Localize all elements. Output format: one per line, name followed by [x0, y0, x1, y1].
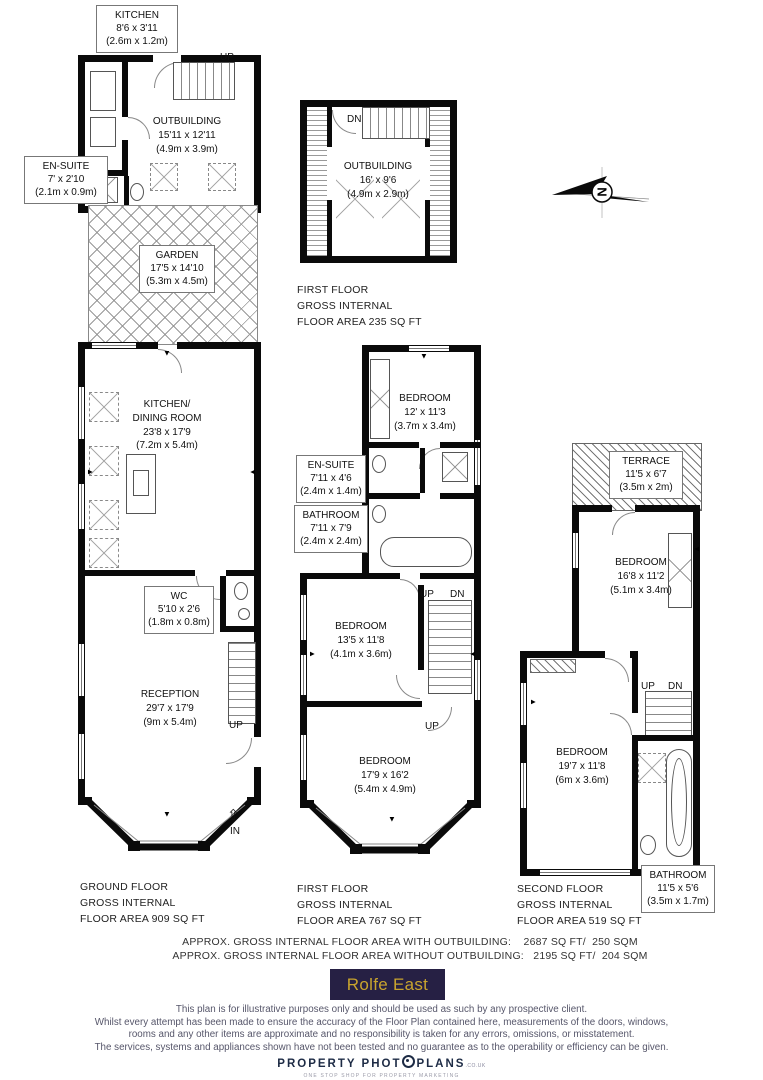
caption-line: GROSS INTERNAL [297, 898, 422, 914]
room-name: KITCHEN [99, 9, 175, 22]
total-area-without-outbuilding: APPROX. GROSS INTERNAL FLOOR AREA WITHOU… [60, 950, 760, 962]
room-dims-metric: (4.9m x 2.9m) [333, 188, 423, 202]
hob [90, 117, 116, 147]
kitchen-sink [90, 71, 116, 111]
room-dims-imperial: 17'5 x 14'10 [142, 262, 212, 275]
wall [124, 176, 129, 208]
room-dims-imperial: 7'11 x 4'6 [299, 472, 363, 485]
room-dims-imperial: 23'8 x 17'9 [122, 426, 212, 440]
door-arc [612, 512, 635, 535]
room-dims-metric: (2.4m x 2.4m) [297, 535, 365, 548]
toilet [234, 582, 248, 600]
caption-line: GROSS INTERNAL [517, 898, 642, 914]
caption-second-floor: SECOND FLOOR GROSS INTERNAL FLOOR AREA 5… [517, 882, 642, 929]
room-dims-metric: (1.8m x 0.8m) [147, 616, 211, 629]
kitchen-unit [89, 392, 119, 422]
measurement-marker-icon [163, 810, 171, 818]
room-label-terrace: TERRACE 11'5 x 6'7 (3.5m x 2m) [609, 451, 683, 499]
wall [78, 529, 85, 644]
kitchen-unit [89, 538, 119, 568]
room-dims-metric: (7.2m x 5.4m) [122, 439, 212, 453]
door-arc [396, 675, 420, 699]
measurement-marker-icon [163, 349, 171, 357]
room-dims-metric: (3.5m x 2m) [612, 481, 680, 494]
sloped-ceiling-hatch [307, 107, 327, 256]
room-dims-imperial: 17'9 x 16'2 [340, 769, 430, 783]
window [300, 655, 307, 695]
room-dims-imperial: 19'7 x 11'8 [537, 760, 627, 774]
caption-line: FIRST FLOOR [297, 882, 422, 898]
wall [425, 200, 430, 256]
stairs [228, 642, 256, 724]
room-dims-metric: (2.1m x 0.9m) [27, 186, 105, 199]
room-name: EN-SUITE [27, 160, 105, 173]
caption-first-floor-outbuilding: FIRST FLOOR GROSS INTERNAL FLOOR AREA 23… [297, 283, 422, 330]
room-dims-imperial: 11'5 x 6'7 [612, 468, 680, 481]
wall [300, 256, 457, 263]
room-label-ob-ensuite: EN-SUITE 7' x 2'10 (2.1m x 0.9m) [24, 156, 108, 204]
wall [78, 342, 85, 387]
caption-line: SECOND FLOOR [517, 882, 642, 898]
room-label-reception: RECEPTION 29'7 x 17'9 (9m x 5.4m) [126, 688, 214, 729]
caption-line: GROUND FLOOR [80, 880, 205, 896]
wall [520, 725, 527, 763]
wall [78, 696, 85, 734]
footer-logo-suffix: .CO.UK [465, 1063, 485, 1069]
room-name: RECEPTION [126, 688, 214, 702]
stairs-dn-label: DN [668, 681, 682, 692]
room-dims-metric: (2.6m x 1.2m) [99, 35, 175, 48]
skylight [208, 163, 236, 191]
room-label-sf-bathroom: BATHROOM 11'5 x 5'6 (3.5m x 1.7m) [641, 865, 715, 913]
disclaimer-line: This plan is for illustrative purposes o… [40, 1004, 723, 1017]
caption-first-floor: FIRST FLOOR GROSS INTERNAL FLOOR AREA 76… [297, 882, 422, 929]
room-dims-imperial: 7' x 2'10 [27, 173, 105, 186]
window [474, 660, 481, 700]
wall [300, 780, 307, 800]
disclaimer: This plan is for illustrative purposes o… [40, 1004, 723, 1054]
room-label-ff-bedroom1: BEDROOM 12' x 11'3 (3.7m x 3.4m) [380, 392, 470, 433]
north-compass: N [552, 165, 652, 220]
room-dims-imperial: 16' x 9'6 [333, 174, 423, 188]
wall [572, 505, 579, 533]
room-dims-imperial: 16'8 x 11'2 [596, 570, 686, 584]
footer-logo-row: PROPERTY PHOTPLANS.CO.UK [0, 1054, 763, 1072]
wall [420, 448, 425, 493]
wall [572, 651, 605, 658]
measurement-marker-icon [86, 468, 94, 476]
room-name: BEDROOM [316, 620, 406, 634]
measurement-marker-icon [529, 698, 537, 706]
wall [254, 767, 261, 797]
basin [238, 608, 250, 620]
room-dims-metric: (3.5m x 1.7m) [644, 895, 712, 908]
disclaimer-line: The services, systems and appliances sho… [40, 1042, 723, 1055]
agent-logo: Rolfe East [330, 969, 445, 1000]
window [540, 869, 630, 876]
room-label-sf-bedroom2: BEDROOM 19'7 x 11'8 (6m x 3.6m) [537, 746, 627, 787]
caption-line: GROSS INTERNAL [297, 299, 422, 315]
wall [369, 442, 419, 448]
stairs [428, 600, 472, 694]
caption-line: FLOOR AREA 235 SQ FT [297, 315, 422, 331]
caption-line: GROSS INTERNAL [80, 896, 205, 912]
room-label-ob-kitchen: KITCHEN 8'6 x 3'11 (2.6m x 1.2m) [96, 5, 178, 53]
disclaimer-line: rooms and any other items are approximat… [40, 1029, 723, 1042]
room-name: OUTBUILDING [139, 115, 235, 129]
room-name: DINING ROOM [122, 412, 212, 426]
footer-logo-text: PLANS [416, 1058, 465, 1070]
wall [327, 200, 332, 256]
wall [122, 62, 128, 117]
skylight [150, 163, 178, 191]
wall [693, 505, 700, 875]
entry-arrow-icon: ⇧ [227, 806, 240, 824]
window [520, 763, 527, 808]
room-name: BATHROOM [644, 869, 712, 882]
caption-line: FLOOR AREA 909 SQ FT [80, 912, 205, 928]
caption-line: FIRST FLOOR [297, 283, 422, 299]
room-dims-metric: (4.9m x 3.9m) [139, 143, 235, 157]
stairs [362, 107, 430, 139]
floorplan-page: N KITCHEN 8'6 x 3'11 (2.6m x 1.2m) EN-SU… [0, 0, 763, 1080]
footer-logo-tagline: ONE STOP SHOP FOR PROPERTY MARKETING [0, 1073, 763, 1079]
measurement-marker-icon [420, 352, 428, 360]
room-name: BEDROOM [380, 392, 470, 406]
measurement-marker-icon [308, 650, 316, 658]
stairs-dn-label: DN [450, 589, 464, 600]
bath-inner [671, 758, 687, 846]
room-name: KITCHEN/ [122, 398, 212, 412]
measurement-marker-icon [469, 650, 477, 658]
room-label-kitchen-dining: KITCHEN/ DINING ROOM 23'8 x 17'9 (7.2m x… [122, 398, 212, 453]
bath [380, 537, 472, 567]
wall [136, 342, 158, 349]
caption-ground-floor: GROUND FLOOR GROSS INTERNAL FLOOR AREA 9… [80, 880, 205, 927]
room-label-ob-first: OUTBUILDING 16' x 9'6 (4.9m x 2.9m) [333, 160, 423, 201]
wall [520, 651, 527, 683]
entrance-door-arc [226, 738, 252, 764]
wall [635, 505, 700, 512]
kitchen-unit [89, 500, 119, 530]
stairs [645, 691, 692, 739]
window [78, 387, 85, 439]
room-dims-metric: (3.7m x 3.4m) [380, 420, 470, 434]
sloped-ceiling-hatch [430, 107, 450, 256]
wall [474, 700, 481, 800]
stairs-up-label: UP [425, 721, 439, 732]
window [409, 345, 449, 352]
wall [632, 735, 700, 741]
shower [442, 452, 468, 482]
wall [78, 55, 153, 62]
wall [254, 55, 261, 213]
camera-aperture-icon [402, 1055, 415, 1068]
room-name: OUTBUILDING [333, 160, 423, 174]
plan-second-floor [520, 443, 704, 875]
wall [440, 493, 481, 499]
room-label-ff-bedroom2: BEDROOM 13'5 x 11'8 (4.1m x 3.6m) [316, 620, 406, 661]
wall [440, 442, 481, 448]
room-dims-imperial: 29'7 x 17'9 [126, 702, 214, 716]
wall [362, 493, 420, 499]
window [520, 683, 527, 725]
wall [220, 576, 226, 632]
room-label-wc: WC 5'10 x 2'6 (1.8m x 0.8m) [144, 586, 214, 634]
measurement-marker-icon [388, 815, 396, 823]
room-name: WC [147, 590, 211, 603]
wall [520, 869, 540, 876]
toilet [372, 455, 386, 473]
window [300, 595, 307, 640]
caption-line: FLOOR AREA 767 SQ FT [297, 914, 422, 930]
bay-window [300, 800, 481, 878]
room-name: EN-SUITE [299, 459, 363, 472]
door-arc [605, 658, 629, 682]
door-arc [610, 713, 632, 735]
property-photo-plans-logo: PROPERTY PHOTPLANS.CO.UK ONE STOP SHOP F… [0, 1054, 763, 1079]
stairs-up-label: UP [220, 52, 234, 63]
wall [520, 651, 580, 658]
room-name: BEDROOM [596, 556, 686, 570]
agent-logo-text: Rolfe East [347, 975, 428, 995]
room-dims-metric: (2.4m x 1.4m) [299, 485, 363, 498]
wall [300, 100, 307, 263]
stairs [173, 62, 235, 100]
wall [420, 573, 481, 579]
wall [520, 808, 527, 875]
wall [300, 573, 400, 579]
room-name: BEDROOM [340, 755, 430, 769]
room-label-sf-bedroom1: BEDROOM 16'8 x 11'2 (5.1m x 3.4m) [596, 556, 686, 597]
room-dims-imperial: 8'6 x 3'11 [99, 22, 175, 35]
window [300, 735, 307, 780]
room-dims-metric: (6m x 3.6m) [537, 774, 627, 788]
toilet [130, 183, 144, 201]
room-dims-metric: (9m x 5.4m) [126, 716, 214, 730]
wall [300, 100, 457, 107]
room-label-ff-bathroom: BATHROOM 7'11 x 7'9 (2.4m x 2.4m) [294, 505, 368, 553]
wall [450, 100, 457, 263]
room-label-ff-ensuite: EN-SUITE 7'11 x 4'6 (2.4m x 1.4m) [296, 455, 366, 503]
room-dims-metric: (5.1m x 3.4m) [596, 584, 686, 598]
door-arc [400, 579, 420, 599]
wall [630, 651, 638, 658]
wall [78, 779, 85, 797]
caption-line: FLOOR AREA 519 SQ FT [517, 914, 642, 930]
disclaimer-line: Whilst every attempt has been made to en… [40, 1017, 723, 1030]
window [572, 533, 579, 568]
room-name: TERRACE [612, 455, 680, 468]
room-dims-imperial: 12' x 11'3 [380, 406, 470, 420]
window [78, 644, 85, 696]
stairs-up-label: UP [229, 720, 243, 731]
shower [638, 753, 666, 783]
wall [226, 626, 254, 632]
window [92, 342, 136, 349]
window [78, 484, 85, 529]
wall [226, 570, 261, 576]
wall [572, 568, 579, 655]
wall [85, 570, 195, 576]
room-label-ff-bedroom3: BEDROOM 17'9 x 16'2 (5.4m x 4.9m) [340, 755, 430, 796]
measurement-marker-icon [693, 545, 701, 553]
wall [362, 345, 409, 352]
room-label-ob-ground: OUTBUILDING 15'11 x 12'11 (4.9m x 3.9m) [139, 115, 235, 156]
hob [133, 470, 149, 496]
room-dims-metric: (5.4m x 4.9m) [340, 783, 430, 797]
wall [177, 342, 261, 349]
room-label-garden: GARDEN 17'5 x 14'10 (5.3m x 4.5m) [139, 245, 215, 293]
toilet [640, 835, 656, 855]
room-dims-metric: (4.1m x 3.6m) [316, 648, 406, 662]
room-dims-imperial: 7'11 x 7'9 [297, 522, 365, 535]
room-dims-imperial: 13'5 x 11'8 [316, 634, 406, 648]
wall [300, 640, 307, 655]
room-name: BEDROOM [537, 746, 627, 760]
wall [300, 573, 307, 595]
room-name: BATHROOM [297, 509, 365, 522]
stairs-up-label: UP [641, 681, 655, 692]
stairs-dn-label: DN [347, 114, 361, 125]
entry-in-label: IN [230, 826, 240, 837]
footer-logo-text: PROPERTY PHOT [277, 1058, 401, 1070]
stairs-up-label: UP [420, 589, 434, 600]
wall [474, 345, 481, 440]
room-dims-imperial: 5'10 x 2'6 [147, 603, 211, 616]
room-dims-imperial: 15'11 x 12'11 [139, 129, 235, 143]
compass-north-letter: N [595, 187, 610, 196]
roof-hatch [530, 659, 576, 673]
toilet [372, 505, 386, 523]
room-dims-imperial: 11'5 x 5'6 [644, 882, 712, 895]
wall [300, 701, 422, 707]
wall [632, 658, 638, 713]
measurement-marker-icon [249, 468, 257, 476]
wall [78, 439, 85, 484]
window [78, 734, 85, 779]
room-name: GARDEN [142, 249, 212, 262]
total-area-with-outbuilding: APPROX. GROSS INTERNAL FLOOR AREA WITH O… [60, 936, 760, 948]
room-dims-metric: (5.3m x 4.5m) [142, 275, 212, 288]
